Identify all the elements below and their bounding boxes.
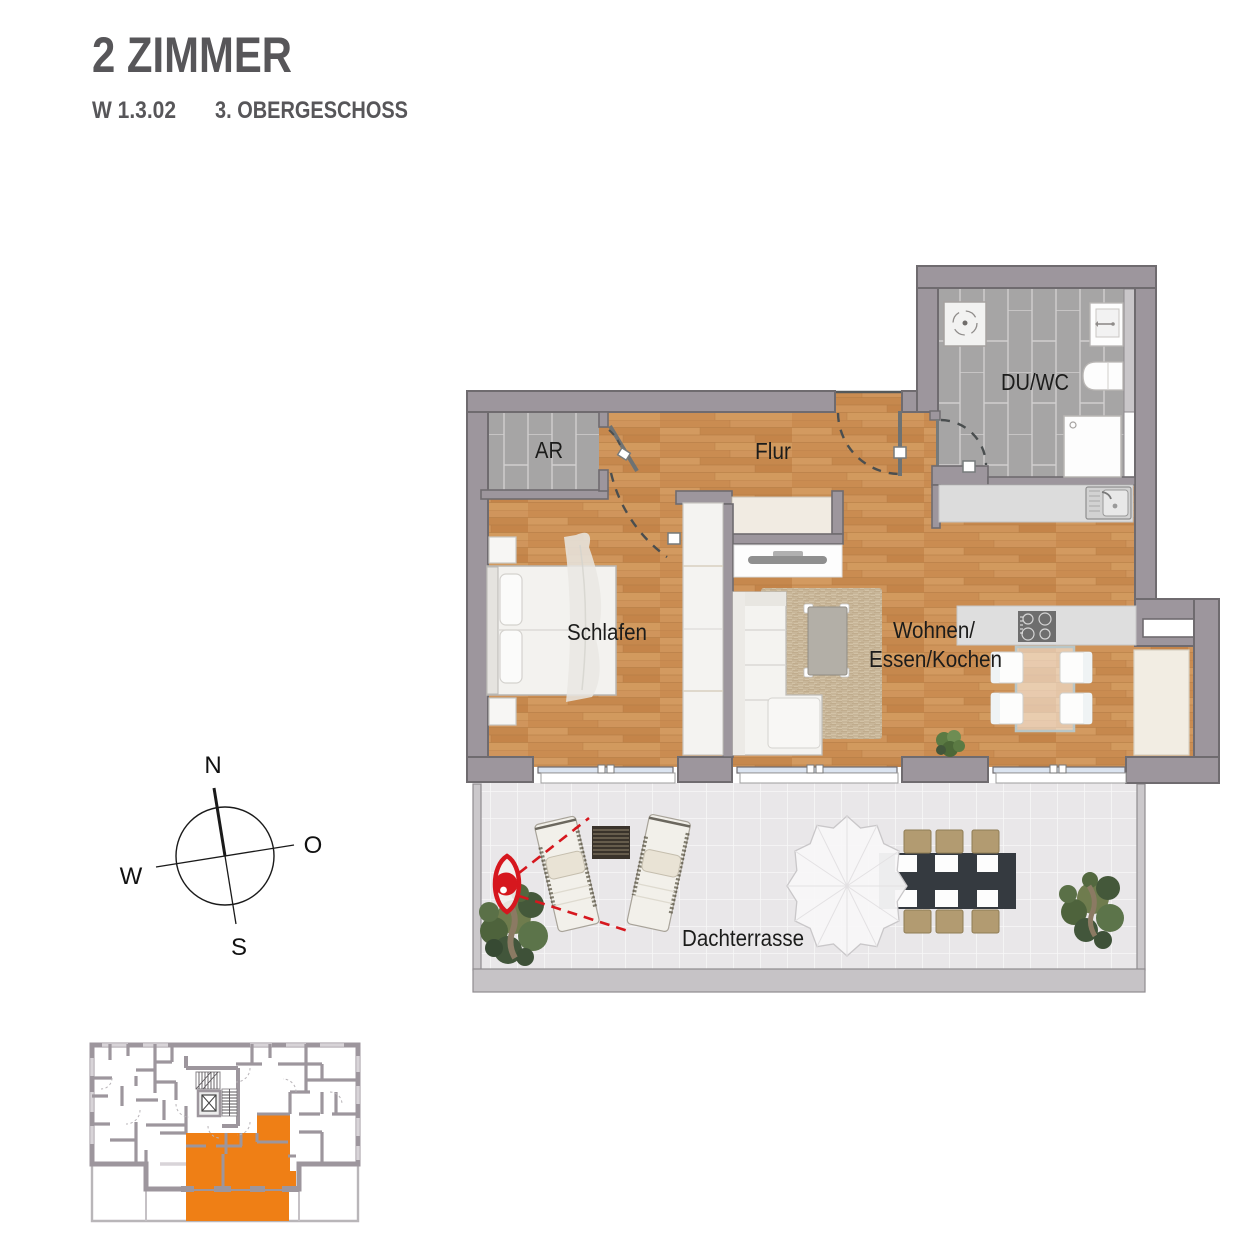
svg-text:S: S: [231, 934, 247, 961]
svg-text:O: O: [304, 832, 323, 859]
svg-text:Essen/Kochen: Essen/Kochen: [869, 646, 1002, 672]
svg-text:Wohnen/: Wohnen/: [893, 617, 976, 643]
svg-text:2 ZIMMER: 2 ZIMMER: [92, 27, 292, 83]
svg-text:AR: AR: [535, 437, 563, 463]
svg-text:Dachterrasse: Dachterrasse: [682, 925, 804, 951]
svg-text:DU/WC: DU/WC: [1001, 369, 1069, 395]
svg-text:3. OBERGESCHOSS: 3. OBERGESCHOSS: [215, 97, 408, 124]
svg-text:W: W: [120, 863, 143, 890]
svg-text:N: N: [204, 752, 221, 779]
svg-text:Flur: Flur: [755, 438, 791, 464]
svg-text:W 1.3.02: W 1.3.02: [92, 97, 176, 124]
svg-text:Schlafen: Schlafen: [567, 619, 647, 645]
